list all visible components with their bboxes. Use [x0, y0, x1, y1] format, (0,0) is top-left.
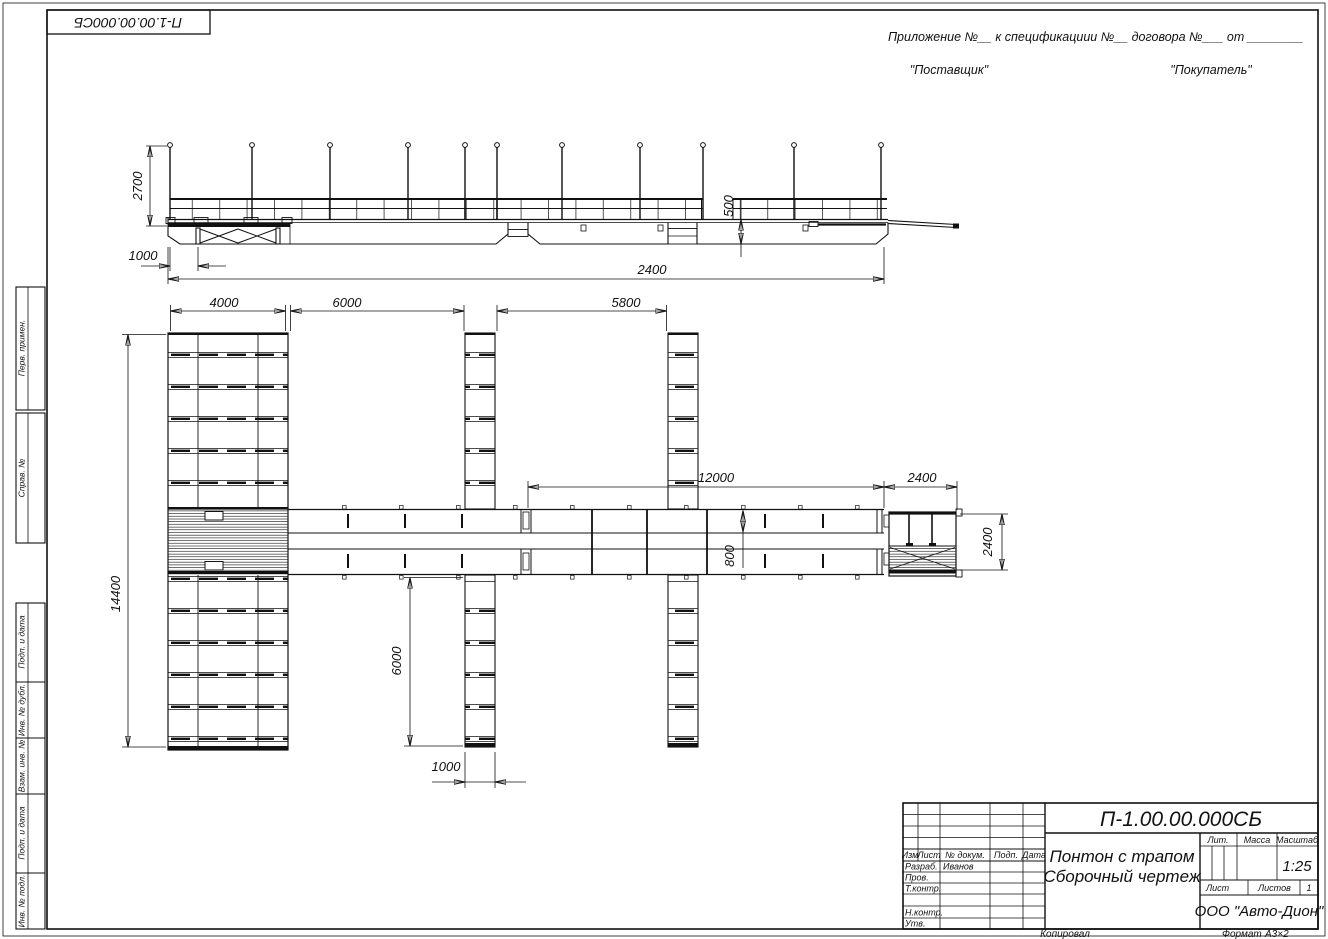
terminal-ramp-hatched: [889, 547, 956, 574]
title-block-row-tkontr: Т.контр.: [905, 884, 941, 894]
drawing-canvas: П-1.00.00.000СБ Перв. примен. Справ. № П…: [0, 0, 1328, 939]
title-block-list-label: Лист: [1205, 883, 1230, 893]
frame-label-inv-dubl: Инв. № дубл.: [17, 684, 27, 736]
title-block-col-izm: Изм: [902, 850, 919, 860]
walkway-mid-joint: [521, 510, 531, 575]
title-block-scale-value: 1:25: [1282, 858, 1312, 875]
frame-label-sprav-no: Справ. №: [17, 459, 27, 498]
dim-plan-bay2: 5800: [612, 295, 642, 310]
dim-plan-lane-width: 800: [722, 544, 737, 566]
dim-plan-bay1: 6000: [333, 295, 363, 310]
railing-panels-left: [170, 199, 703, 219]
title-block-col-list: Лист: [916, 850, 941, 860]
title-block-company: ООО "Авто-Дион": [1195, 903, 1324, 920]
title-block-col-podp: Подп.: [994, 850, 1018, 860]
finger-piers: [465, 333, 698, 747]
dim-side-post-height: 2700: [130, 171, 145, 202]
left-margin-boxes-upper: Перв. примен. Справ. №: [16, 287, 45, 543]
header-note-buyer: "Покупатель": [1170, 63, 1252, 77]
trap-platform-hatched: [168, 507, 288, 574]
frame-label-perv-primen: Перв. примен.: [17, 320, 27, 377]
corner-stamp-doc-number: П-1.00.00.000СБ: [74, 15, 182, 31]
footer-copied: Копировал: [1040, 929, 1090, 939]
railing-panels-right: [733, 199, 881, 219]
hull-joint-bridge: [508, 230, 528, 237]
scissor-gangway-folded: [196, 228, 280, 244]
title-block-col-doc: № докум.: [945, 850, 985, 860]
dim-plan-finger-width: 1000: [432, 759, 462, 774]
title-block: П-1.00.00.000СБ Понтон с трапом Сборочны…: [902, 803, 1324, 929]
dim-side-trap-offset: 1000: [129, 248, 159, 263]
pontoon-plan-view: [168, 333, 962, 750]
frame-label-podp-data-1: Подп. и дата: [17, 615, 27, 668]
dim-plan-finger-length: 6000: [389, 646, 404, 676]
dim-side-freeboard: 500: [721, 194, 736, 216]
title-block-sheets-value: 1: [1306, 883, 1311, 893]
walkway-end-joint: [877, 510, 889, 575]
title-block-row-prov: Пров.: [905, 873, 929, 883]
footer-format-label: Формат: [1222, 929, 1262, 939]
frame-label-podp-data-2: Подп. и дата: [17, 806, 27, 859]
title-block-listov-label: Листов: [1257, 883, 1291, 893]
title-block-row-utv: Утв.: [904, 919, 925, 929]
dim-plan-terminal-height: 2400: [980, 527, 995, 558]
title-block-massa-label: Масса: [1244, 835, 1271, 845]
main-pontoon-block: [168, 333, 288, 750]
title-block-col-data: Дата: [1021, 850, 1046, 860]
terminal-platform: [889, 509, 962, 577]
header-note-line: Приложение №__ к спецификациии №__ догов…: [888, 30, 1303, 44]
dim-plan-walkway-len: 12000: [698, 470, 735, 485]
title-block-masshtab-label: Масштаб: [1276, 835, 1319, 845]
left-margin-boxes-lower: Подп. и дата Инв. № дубл. Взам. инв. № П…: [16, 603, 45, 929]
shore-gangway: [809, 221, 959, 229]
title-block-row-razrab: Разраб.: [905, 862, 938, 872]
title-block-row-nkontr: Н.контр.: [905, 908, 943, 918]
deck-cleats: [581, 225, 808, 231]
title-block-doc-number: П-1.00.00.000СБ: [1100, 808, 1262, 831]
walkway-section-dividers: [592, 510, 707, 575]
walkway-lane-joints: [348, 514, 823, 568]
dim-plan-block-width: 4000: [210, 295, 240, 310]
header-note: Приложение №__ к спецификациии №__ догов…: [888, 30, 1303, 77]
title-block-razrab-name: Иванов: [943, 862, 974, 872]
central-walkway: [288, 505, 889, 580]
dim-side-overall: 2400: [637, 262, 668, 277]
deck: [166, 218, 888, 245]
pontoon-side-view: [166, 143, 959, 244]
dim-plan-terminal-width: 2400: [907, 470, 938, 485]
dim-plan-overall-height: 14400: [108, 575, 123, 612]
frame-label-vzam-inv: Взам. инв. №: [17, 740, 27, 793]
header-note-supplier: "Поставщик": [910, 63, 989, 77]
title-block-title-line2: Сборочный чертеж: [1043, 867, 1201, 886]
title-block-title-line1: Понтон с трапом: [1049, 847, 1194, 866]
sheet-footer: Копировал Формат А3×2: [1040, 929, 1289, 939]
drawing-sheet: П-1.00.00.000СБ Перв. примен. Справ. № П…: [0, 0, 1328, 939]
frame-label-inv-podl: Инв. № подл.: [17, 875, 27, 928]
title-block-lit-label: Лит.: [1206, 835, 1228, 845]
footer-format-value: А3×2: [1264, 929, 1289, 939]
